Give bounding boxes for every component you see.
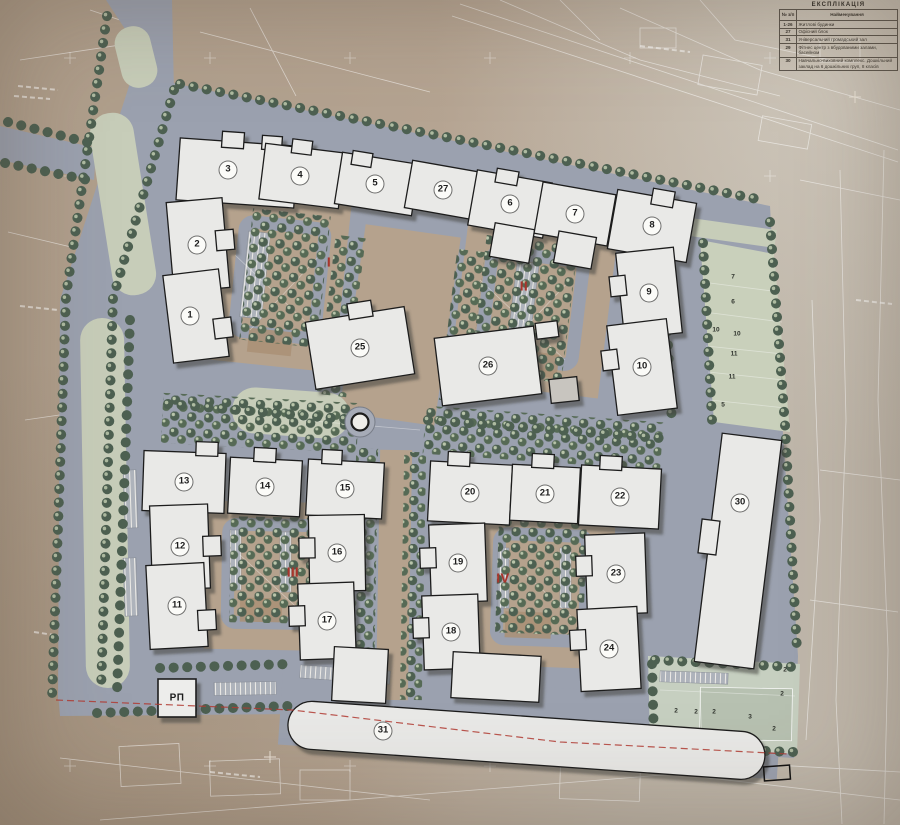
legend-row-num: 29 [780,44,797,57]
courtyard-numeral-III: III [287,565,299,580]
building-label-17: 17 [318,612,337,631]
building-label-25: 25 [351,339,370,358]
zone-label-2: 2 [780,691,784,698]
legend-row: 27 Офісний блок [780,28,898,36]
building-label-5: 5 [366,175,385,194]
legend-row-num: 27 [780,28,797,36]
zone-label-2: 2 [694,709,698,716]
building-label-21: 21 [536,485,555,504]
misc-label-РП: РП [170,693,185,704]
courtyard-numeral-I: I [327,255,331,270]
building-label-20: 20 [461,484,480,503]
building-label-30: 30 [731,494,750,513]
zone-label-6: 6 [731,299,735,306]
legend-table: № з/п Найменування 1-26 Житлові будинки … [779,9,898,71]
building-label-6: 6 [501,195,520,214]
legend-row: 1-26 Житлові будинки [780,21,898,29]
building-label-1: 1 [181,307,200,326]
zone-label-7: 7 [731,274,735,281]
building-label-13: 13 [175,473,194,492]
site-plan-photo: 1234567891011121314151617181920212223242… [0,0,900,825]
building-label-3: 3 [219,161,238,180]
building-label-7: 7 [566,205,585,224]
legend: ЕКСПЛІКАЦІЯ № з/п Найменування 1-26 Житл… [779,2,898,71]
zone-label-2: 2 [712,709,716,716]
building-label-9: 9 [640,284,659,303]
zone-label-2: 2 [783,667,787,674]
building-label-22: 22 [611,488,630,507]
building-label-15: 15 [336,480,355,499]
building-label-26: 26 [479,357,498,376]
building-label-27: 27 [434,181,453,200]
zone-label-10: 10 [733,331,740,338]
legend-row-num: 1-26 [780,21,797,29]
building-label-16: 16 [328,544,347,563]
legend-row-num: 31 [780,36,797,44]
zone-label-5: 5 [721,402,725,409]
legend-row: 29 Фітнес центр з вбудованими залами, ба… [780,44,898,57]
legend-row: 31 Універсальний громадський зал [780,36,898,44]
legend-col-name: Найменування [797,10,898,21]
legend-row-name: Навчально-виховний комплекс. Дошкільний … [797,57,898,70]
building-label-14: 14 [256,478,275,497]
legend-row: 30 Навчально-виховний комплекс. Дошкільн… [780,57,898,70]
legend-row-num: 30 [780,57,797,70]
building-label-10: 10 [633,358,652,377]
courtyard-numeral-IV: IV [496,571,509,586]
courtyard-numeral-II: II [520,279,528,294]
zone-label-2: 2 [674,708,678,715]
legend-row-name: Житлові будинки [797,21,898,29]
building-label-12: 12 [171,538,190,557]
building-label-8: 8 [643,217,662,236]
legend-title: ЕКСПЛІКАЦІЯ [779,2,898,8]
building-label-23: 23 [607,565,626,584]
building-label-24: 24 [600,640,619,659]
zone-label-10: 10 [712,327,719,334]
zone-label-11: 11 [731,351,738,358]
legend-row-name: Фітнес центр з вбудованими залами, басей… [797,44,898,57]
legend-row-name: Універсальний громадський зал [797,36,898,44]
legend-header-row: № з/п Найменування [780,10,898,21]
building-label-4: 4 [291,167,310,186]
building-label-11: 11 [168,597,187,616]
legend-row-name: Офісний блок [797,28,898,36]
legend-col-num: № з/п [780,10,797,21]
building-label-31: 31 [374,722,393,741]
building-label-18: 18 [442,623,461,642]
plan-labels-layer: 1234567891011121314151617181920212223242… [0,0,900,825]
building-label-2: 2 [188,236,207,255]
zone-label-11: 11 [729,374,736,381]
zone-label-2: 2 [772,726,776,733]
building-label-19: 19 [449,554,468,573]
zone-label-3: 3 [748,714,752,721]
